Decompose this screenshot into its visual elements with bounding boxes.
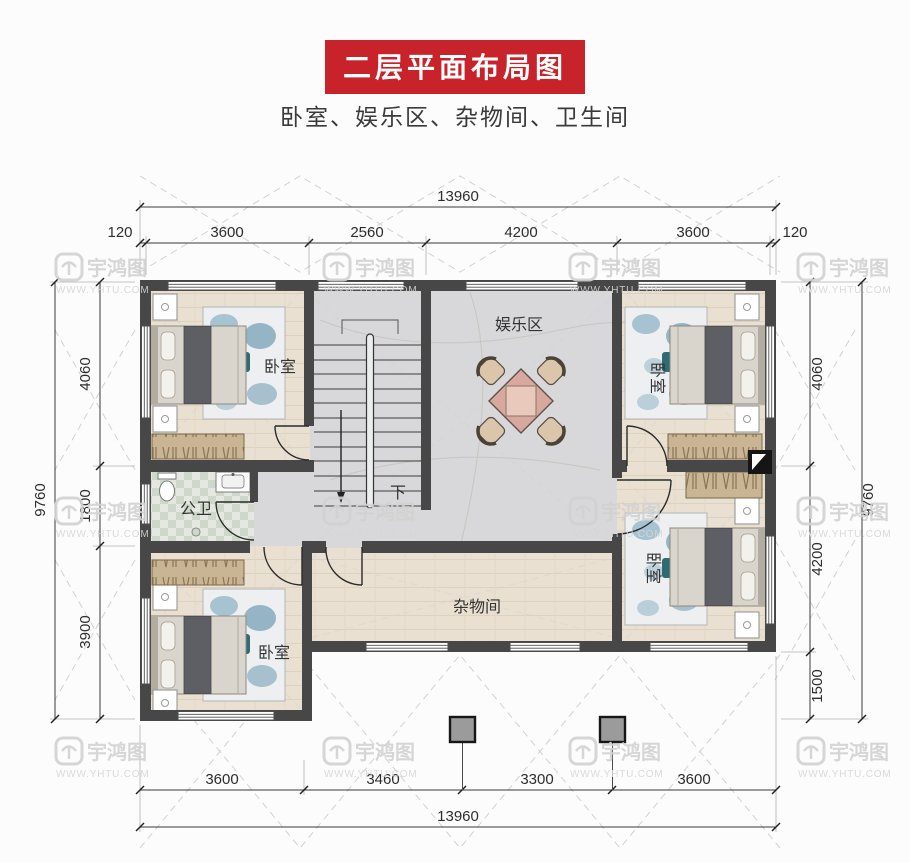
bed — [150, 616, 246, 694]
window — [142, 326, 151, 418]
svg-text:宇鸿图: 宇鸿图 — [601, 256, 661, 280]
sink-icon — [222, 475, 244, 488]
column — [600, 717, 625, 742]
stair-handrail — [367, 334, 374, 508]
dim-total-top: 13960 — [437, 188, 479, 205]
dim-seg: 3900 — [77, 615, 94, 648]
dim-seg: 4060 — [809, 357, 826, 390]
label-bathroom: 公卫 — [180, 499, 212, 518]
toilet-icon — [160, 481, 175, 501]
wall-entertainment-right — [612, 291, 622, 460]
window — [766, 536, 775, 624]
nightstand — [153, 294, 177, 320]
game-table-top — [506, 386, 536, 416]
wardrobe — [152, 560, 244, 585]
label-entertainment: 娱乐区 — [495, 315, 543, 334]
nightstand — [153, 406, 177, 432]
svg-text:宇鸿图: 宇鸿图 — [601, 740, 661, 764]
watermark: 宇鸿图WWW.YHTU.COM — [324, 254, 417, 296]
svg-text:宇鸿图: 宇鸿图 — [87, 500, 147, 524]
watermark: 宇鸿图WWW.YHTU.COM — [324, 738, 417, 780]
watermark: 宇鸿图WWW.YHTU.COM — [798, 254, 891, 296]
nightstand — [735, 294, 759, 320]
dim-seg: 3600 — [210, 224, 243, 241]
flue-symbol — [748, 450, 772, 474]
svg-text:宇鸿图: 宇鸿图 — [829, 500, 889, 524]
wall-stub — [612, 472, 622, 478]
dim-seg: 3600 — [676, 224, 709, 241]
window — [142, 598, 151, 684]
dim-seg: 120 — [782, 224, 807, 241]
label-bedroom-bottom-right: 卧室 — [644, 552, 663, 584]
window — [650, 643, 748, 652]
dim-seg: 3600 — [205, 771, 238, 788]
window — [466, 282, 578, 291]
page-subtitle: 卧室、娱乐区、杂物间、卫生间 — [0, 98, 910, 132]
svg-text:WWW.YHTU.COM: WWW.YHTU.COM — [324, 529, 417, 540]
svg-text:WWW.YHTU.COM: WWW.YHTU.COM — [56, 285, 149, 296]
svg-text:宇鸿图: 宇鸿图 — [355, 740, 415, 764]
wall-bedroom1-right — [304, 291, 314, 426]
wall-bedroom3-right — [302, 541, 312, 721]
nightstand — [735, 406, 759, 432]
svg-text:宇鸿图: 宇鸿图 — [87, 740, 147, 764]
wall-hall-bottom-b — [362, 541, 612, 553]
bed — [670, 326, 766, 404]
wall-mid-left — [140, 460, 314, 472]
window — [366, 643, 448, 652]
watermark: 宇鸿图WWW.YHTU.COM — [56, 738, 149, 780]
wall-mid-right-a — [612, 460, 627, 472]
dim-seg: 4060 — [77, 357, 94, 390]
label-bedroom-top-left: 卧室 — [264, 357, 296, 376]
dim-seg: 4200 — [809, 542, 826, 575]
bed — [670, 528, 766, 606]
wardrobe — [668, 434, 762, 459]
svg-text:WWW.YHTU.COM: WWW.YHTU.COM — [56, 769, 149, 780]
window — [168, 282, 276, 291]
window — [510, 643, 580, 652]
dim-total-bottom: 13960 — [437, 808, 479, 825]
dim-seg: 120 — [107, 224, 132, 241]
watermark: 宇鸿图WWW.YHTU.COM — [570, 254, 663, 296]
svg-text:WWW.YHTU.COM: WWW.YHTU.COM — [324, 285, 417, 296]
bed — [150, 326, 246, 404]
nightstand — [735, 498, 759, 524]
faucet-icon — [232, 473, 235, 476]
svg-text:宇鸿图: 宇鸿图 — [829, 256, 889, 280]
label-storage: 杂物间 — [453, 597, 501, 616]
svg-text:宇鸿图: 宇鸿图 — [355, 256, 415, 280]
watermark: 宇鸿图WWW.YHTU.COM — [570, 738, 663, 780]
svg-text:WWW.YHTU.COM: WWW.YHTU.COM — [570, 529, 663, 540]
wall-bedroom4-left — [612, 534, 622, 641]
dim-seg: 4200 — [504, 224, 537, 241]
column — [450, 717, 475, 742]
svg-text:WWW.YHTU.COM: WWW.YHTU.COM — [570, 769, 663, 780]
label-bedroom-top-right: 卧室 — [648, 362, 667, 394]
svg-text:WWW.YHTU.COM: WWW.YHTU.COM — [570, 285, 663, 296]
watermark: 宇鸿图WWW.YHTU.COM — [798, 738, 891, 780]
wall-bathroom-bottom — [140, 541, 250, 553]
window — [766, 326, 775, 418]
svg-text:宇鸿图: 宇鸿图 — [87, 256, 147, 280]
watermark: 宇鸿图WWW.YHTU.COM — [56, 254, 149, 296]
svg-text:WWW.YHTU.COM: WWW.YHTU.COM — [798, 769, 891, 780]
toilet-tank — [158, 473, 176, 479]
watermark: 宇鸿图WWW.YHTU.COM — [798, 498, 891, 540]
window — [178, 712, 274, 721]
watermark: 宇鸿图WWW.YHTU.COM — [56, 498, 149, 540]
nightstand — [735, 612, 759, 638]
dim-seg: 2560 — [350, 224, 383, 241]
svg-text:WWW.YHTU.COM: WWW.YHTU.COM — [798, 529, 891, 540]
svg-text:WWW.YHTU.COM: WWW.YHTU.COM — [56, 529, 149, 540]
dim-top: 13960 120 3600 2560 4200 3600 120 — [107, 188, 807, 275]
dim-seg: 3600 — [677, 771, 710, 788]
svg-text:WWW.YHTU.COM: WWW.YHTU.COM — [798, 285, 891, 296]
dim-seg: 3300 — [520, 771, 553, 788]
svg-text:宇鸿图: 宇鸿图 — [829, 740, 889, 764]
label-bedroom-bottom-left: 卧室 — [258, 643, 290, 662]
svg-text:宇鸿图: 宇鸿图 — [601, 500, 661, 524]
wardrobe — [686, 472, 762, 498]
svg-text:WWW.YHTU.COM: WWW.YHTU.COM — [324, 769, 417, 780]
svg-text:宇鸿图: 宇鸿图 — [355, 500, 415, 524]
wall-stair-right — [421, 291, 431, 510]
dim-seg: 1500 — [809, 669, 826, 702]
page-title-banner: 二层平面布局图 — [325, 40, 585, 94]
wardrobe — [152, 434, 244, 459]
nightstand — [153, 584, 177, 610]
dim-total-left: 9760 — [32, 483, 49, 516]
wall-bathroom-right — [250, 466, 258, 502]
page-title: 二层平面布局图 — [343, 51, 567, 84]
floor-plan-page: 卧室 卧室 卧室 卧室 娱乐区 公卫 杂物间 下 13960 120 3600 … — [0, 0, 910, 863]
